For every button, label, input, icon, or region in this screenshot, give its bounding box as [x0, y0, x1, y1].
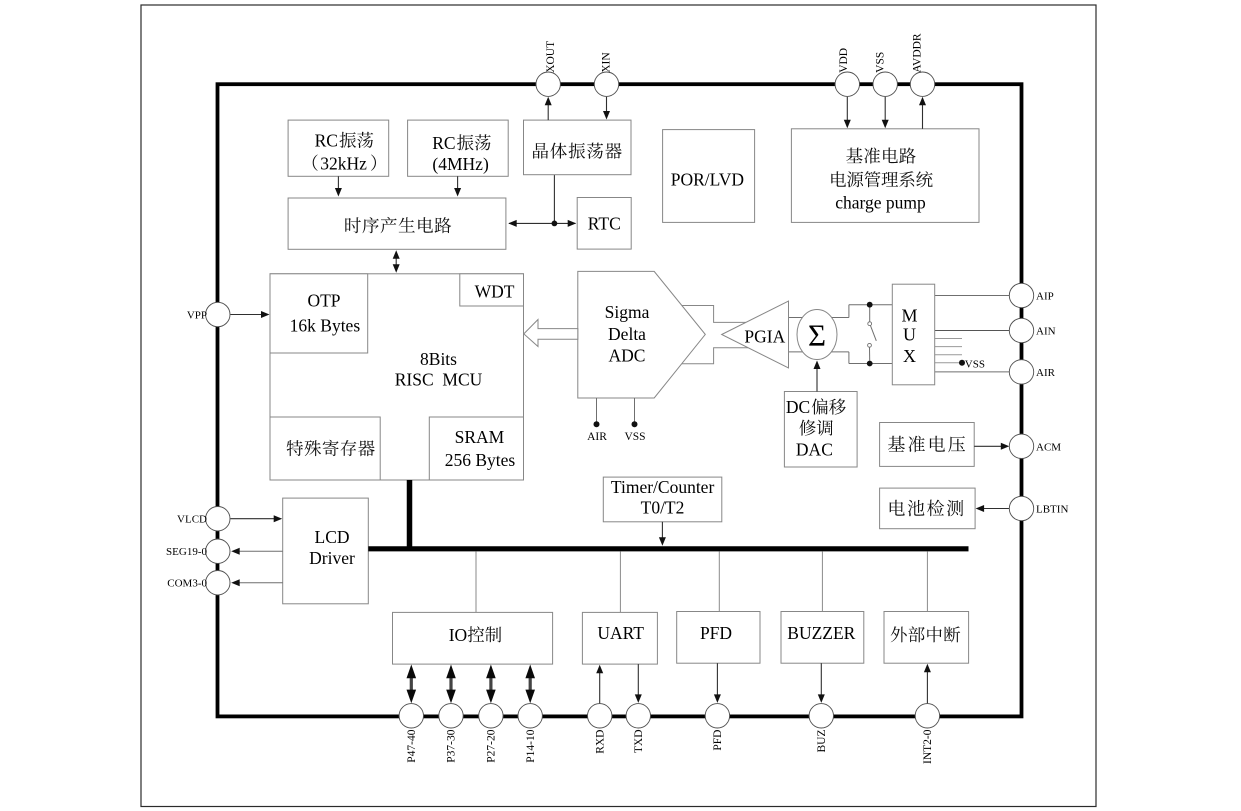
svg-text:ADC: ADC — [609, 346, 646, 366]
svg-text:charge pump: charge pump — [835, 193, 926, 213]
svg-text:Delta: Delta — [608, 324, 646, 344]
svg-text:SRAM: SRAM — [455, 427, 505, 447]
svg-text:ACM: ACM — [1036, 442, 1061, 454]
svg-text:XOUT: XOUT — [545, 41, 557, 73]
svg-text:VPP: VPP — [187, 310, 207, 322]
svg-text:PGIA: PGIA — [744, 326, 785, 346]
svg-text:P27-20: P27-20 — [486, 729, 498, 762]
svg-text:VSS: VSS — [965, 359, 985, 371]
svg-text:U: U — [903, 324, 916, 344]
svg-text:UART: UART — [597, 623, 644, 643]
svg-text:BUZ: BUZ — [816, 730, 828, 753]
svg-text:32kHz: 32kHz — [320, 153, 367, 173]
svg-text:8Bits: 8Bits — [420, 349, 457, 369]
svg-text:XIN: XIN — [601, 52, 613, 73]
svg-text:RXD: RXD — [594, 730, 606, 754]
svg-text:Timer/Counter: Timer/Counter — [611, 477, 715, 497]
svg-text:PFD: PFD — [700, 623, 732, 643]
svg-text:INT2-0: INT2-0 — [922, 729, 934, 764]
svg-text:BUZZER: BUZZER — [787, 623, 855, 643]
svg-text:Driver: Driver — [309, 548, 355, 568]
svg-text:RTC: RTC — [588, 214, 621, 234]
svg-text:P47-40: P47-40 — [406, 729, 418, 762]
svg-text:TXD: TXD — [633, 730, 645, 754]
svg-text:256 Bytes: 256 Bytes — [445, 450, 516, 470]
svg-text:T0/T2: T0/T2 — [641, 498, 685, 518]
svg-text:AIP: AIP — [1036, 291, 1054, 303]
svg-text:RC: RC — [315, 131, 338, 151]
svg-text:AIR: AIR — [1036, 367, 1056, 379]
svg-text:VSS: VSS — [875, 52, 887, 73]
svg-text:X: X — [903, 346, 916, 366]
svg-text:WDT: WDT — [475, 281, 515, 301]
svg-text:IO: IO — [449, 625, 467, 645]
svg-text:(4MHz): (4MHz) — [432, 154, 489, 174]
svg-text:16k Bytes: 16k Bytes — [290, 315, 361, 335]
svg-text:VLCD: VLCD — [177, 514, 207, 526]
svg-text:LBTIN: LBTIN — [1036, 504, 1068, 516]
svg-text:P37-30: P37-30 — [446, 729, 458, 762]
svg-text:PFD: PFD — [712, 730, 724, 751]
svg-text:VDD: VDD — [838, 48, 850, 73]
svg-text:POR/LVD: POR/LVD — [671, 169, 744, 189]
svg-text:AIR: AIR — [587, 431, 607, 443]
svg-text:RC: RC — [432, 133, 455, 153]
svg-text:DC: DC — [786, 397, 810, 417]
svg-text:M: M — [901, 305, 917, 325]
svg-text:AIN: AIN — [1036, 326, 1056, 338]
svg-text:OTP: OTP — [307, 291, 340, 311]
svg-text:P14-10: P14-10 — [525, 729, 537, 762]
svg-text:RISC MCU: RISC MCU — [395, 370, 483, 390]
svg-text:Σ: Σ — [808, 318, 826, 353]
svg-text:AVDDR: AVDDR — [911, 33, 923, 73]
svg-text:Sigma: Sigma — [605, 302, 650, 322]
svg-text:SEG19-0: SEG19-0 — [166, 546, 207, 558]
svg-text:LCD: LCD — [315, 527, 350, 547]
svg-text:VSS: VSS — [624, 431, 645, 443]
svg-text:COM3-0: COM3-0 — [167, 578, 207, 590]
svg-text:DAC: DAC — [796, 440, 833, 460]
